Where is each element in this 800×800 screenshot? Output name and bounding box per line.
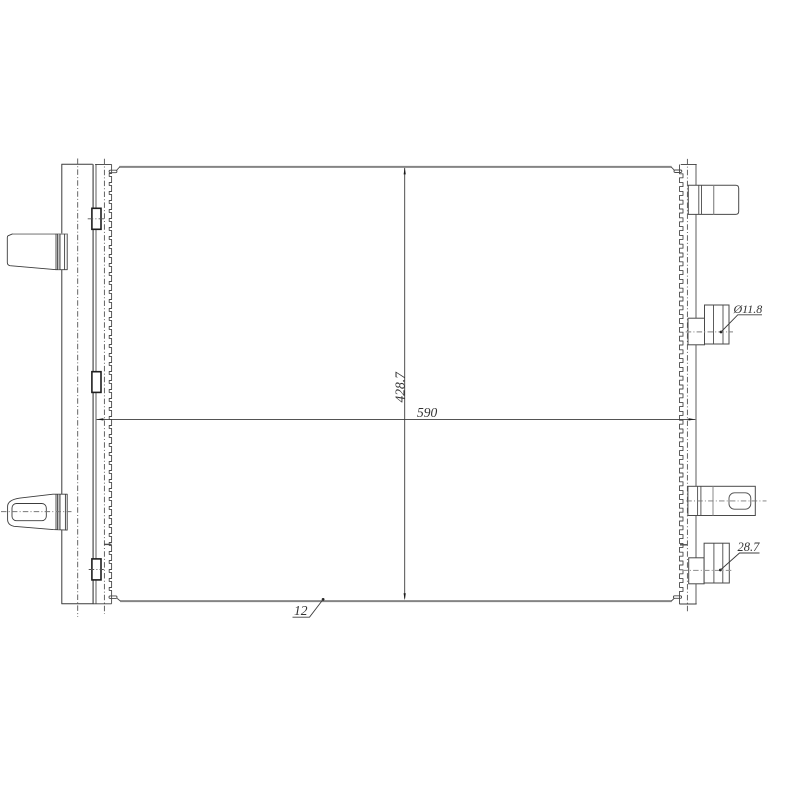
- svg-text:12: 12: [294, 603, 308, 618]
- svg-text:428.7: 428.7: [393, 371, 408, 403]
- svg-text:590: 590: [417, 405, 438, 420]
- svg-text:28.7: 28.7: [738, 540, 761, 554]
- svg-text:Ø11.8: Ø11.8: [733, 302, 763, 316]
